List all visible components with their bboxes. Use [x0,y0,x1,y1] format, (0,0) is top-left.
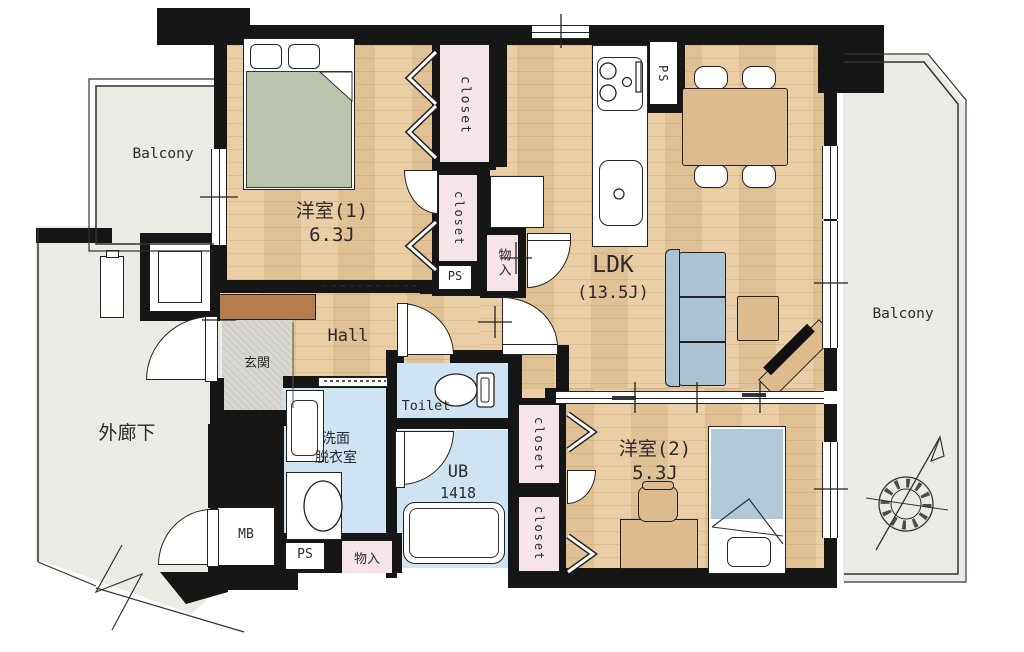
vanity-bowl [291,400,318,456]
label-closet1: closet [452,60,478,150]
sofa-cushion-line [680,341,725,343]
window-bedroom1-balcony [211,149,227,245]
dining-chair [694,66,728,90]
label-balcony-right: Balcony [872,306,933,322]
wall-corridor-top [36,228,112,243]
label-bath-size: 1418 [440,484,476,502]
label-bedroom2-name: 洋室(2) [619,434,691,461]
corridor-pillar [100,256,124,318]
stove [597,57,643,111]
window-bedroom2-balcony [822,442,838,538]
bed1-pillow [288,44,320,69]
wall-top-left-block [157,8,250,45]
bathtub-inner [409,508,499,558]
label-washroom-1: 洗面 [322,428,350,448]
bed2-pillow [727,537,771,567]
dining-table [682,88,788,166]
label-storage-lower: 物入 [354,548,380,567]
sliding-partition-panel [612,396,636,400]
label-closet4: closet [526,498,552,570]
label-bedroom2-size: 5.3J [632,462,678,484]
label-ps-middle: PS [448,269,462,283]
wall-unit-left-lower [210,378,224,508]
door-bath-leaf [395,431,405,488]
sofa-cushion-line [680,296,725,298]
wall-toilet-bath-divider [386,418,512,429]
sofa-back [665,249,680,387]
desk-chair [638,486,678,522]
door-ldk-lower-leaf [502,344,558,355]
label-hall: Hall [328,326,369,346]
label-washroom-2: 脱衣室 [315,447,357,467]
wall-bedroom1-hall-left [222,280,322,293]
washing-machine [286,472,342,540]
dining-chair [742,66,776,90]
shoe-cabinet [204,294,316,320]
floor-plan: 洋室(1) 6.3J LDK (13.5J) 洋室(2) 5.3J Hall 玄… [0,0,1024,652]
dining-chair [742,164,776,188]
label-ldk-name: LDK [592,252,634,278]
sliding-partition-panel [742,393,766,397]
wall-fridge-left [478,162,490,230]
window-ldk-balcony-2 [822,221,838,348]
label-ps-lower: PS [297,547,313,562]
wall-top-right-block [818,25,884,93]
label-ldk-size: (13.5J) [577,283,649,303]
dining-chair [694,164,728,188]
bed1-pillow [250,44,282,69]
wall-gap-partition-right [822,391,838,404]
label-toilet: Toilet [402,398,451,414]
label-ps-kitchen: PS [652,48,674,100]
bed2-mattress [711,429,783,519]
label-closet3: closet [526,408,552,482]
label-bath-name: UB [448,462,468,482]
sofa-seat [679,252,726,386]
door-entrance-leaf [205,316,218,382]
entrance-alcove-inner [158,251,202,303]
balcony-left-area [95,85,215,245]
refrigerator-space [490,176,544,228]
side-table [737,296,779,341]
kitchen-sink [599,160,643,226]
label-bedroom1-name: 洋室(1) [296,196,368,223]
label-bedroom1-size: 6.3J [309,224,355,246]
window-ldk-balcony-1 [822,146,838,219]
corridor-pillar-cap [106,250,119,258]
wall-closet1-kitchen-divider [493,37,507,167]
sliding-partition-ldk-bedroom2 [556,391,824,404]
label-meter-box: MB [238,527,254,542]
desk [620,519,698,569]
bed1-quilt [246,71,352,188]
wall-bottom-left-block [208,562,298,590]
door-meter-box-leaf [207,509,219,567]
door-toilet-leaf [397,303,408,357]
label-balcony-left: Balcony [132,146,193,162]
label-corridor: 外廊下 [98,418,155,445]
label-entrance: 玄関 [244,352,270,371]
label-storage-upper: 物入 [490,239,516,287]
label-closet2: closet [446,180,472,258]
sliding-door-washroom [318,377,388,387]
window-kitchen-top [532,25,589,39]
